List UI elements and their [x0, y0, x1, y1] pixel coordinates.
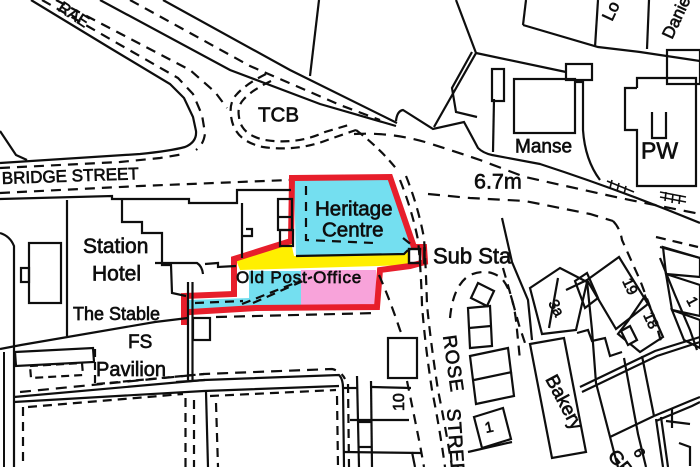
svg-text:6.7m: 6.7m — [474, 170, 522, 194]
svg-text:Heritage: Heritage — [315, 198, 393, 221]
svg-text:TCB: TCB — [258, 104, 299, 127]
svg-text:Manse: Manse — [515, 137, 572, 158]
svg-text:l Sub Sta: l Sub Sta — [422, 244, 512, 269]
svg-text:The Stable: The Stable — [73, 304, 160, 324]
svg-text:Station: Station — [83, 235, 148, 258]
svg-text:Centre: Centre — [322, 219, 384, 242]
svg-text:FS: FS — [128, 332, 152, 353]
svg-text:10: 10 — [391, 393, 408, 411]
svg-text:Old Post Office: Old Post Office — [236, 268, 362, 287]
svg-text:Hotel: Hotel — [92, 263, 141, 286]
svg-text:Pavilion: Pavilion — [96, 359, 166, 381]
svg-text:PW: PW — [641, 138, 678, 164]
